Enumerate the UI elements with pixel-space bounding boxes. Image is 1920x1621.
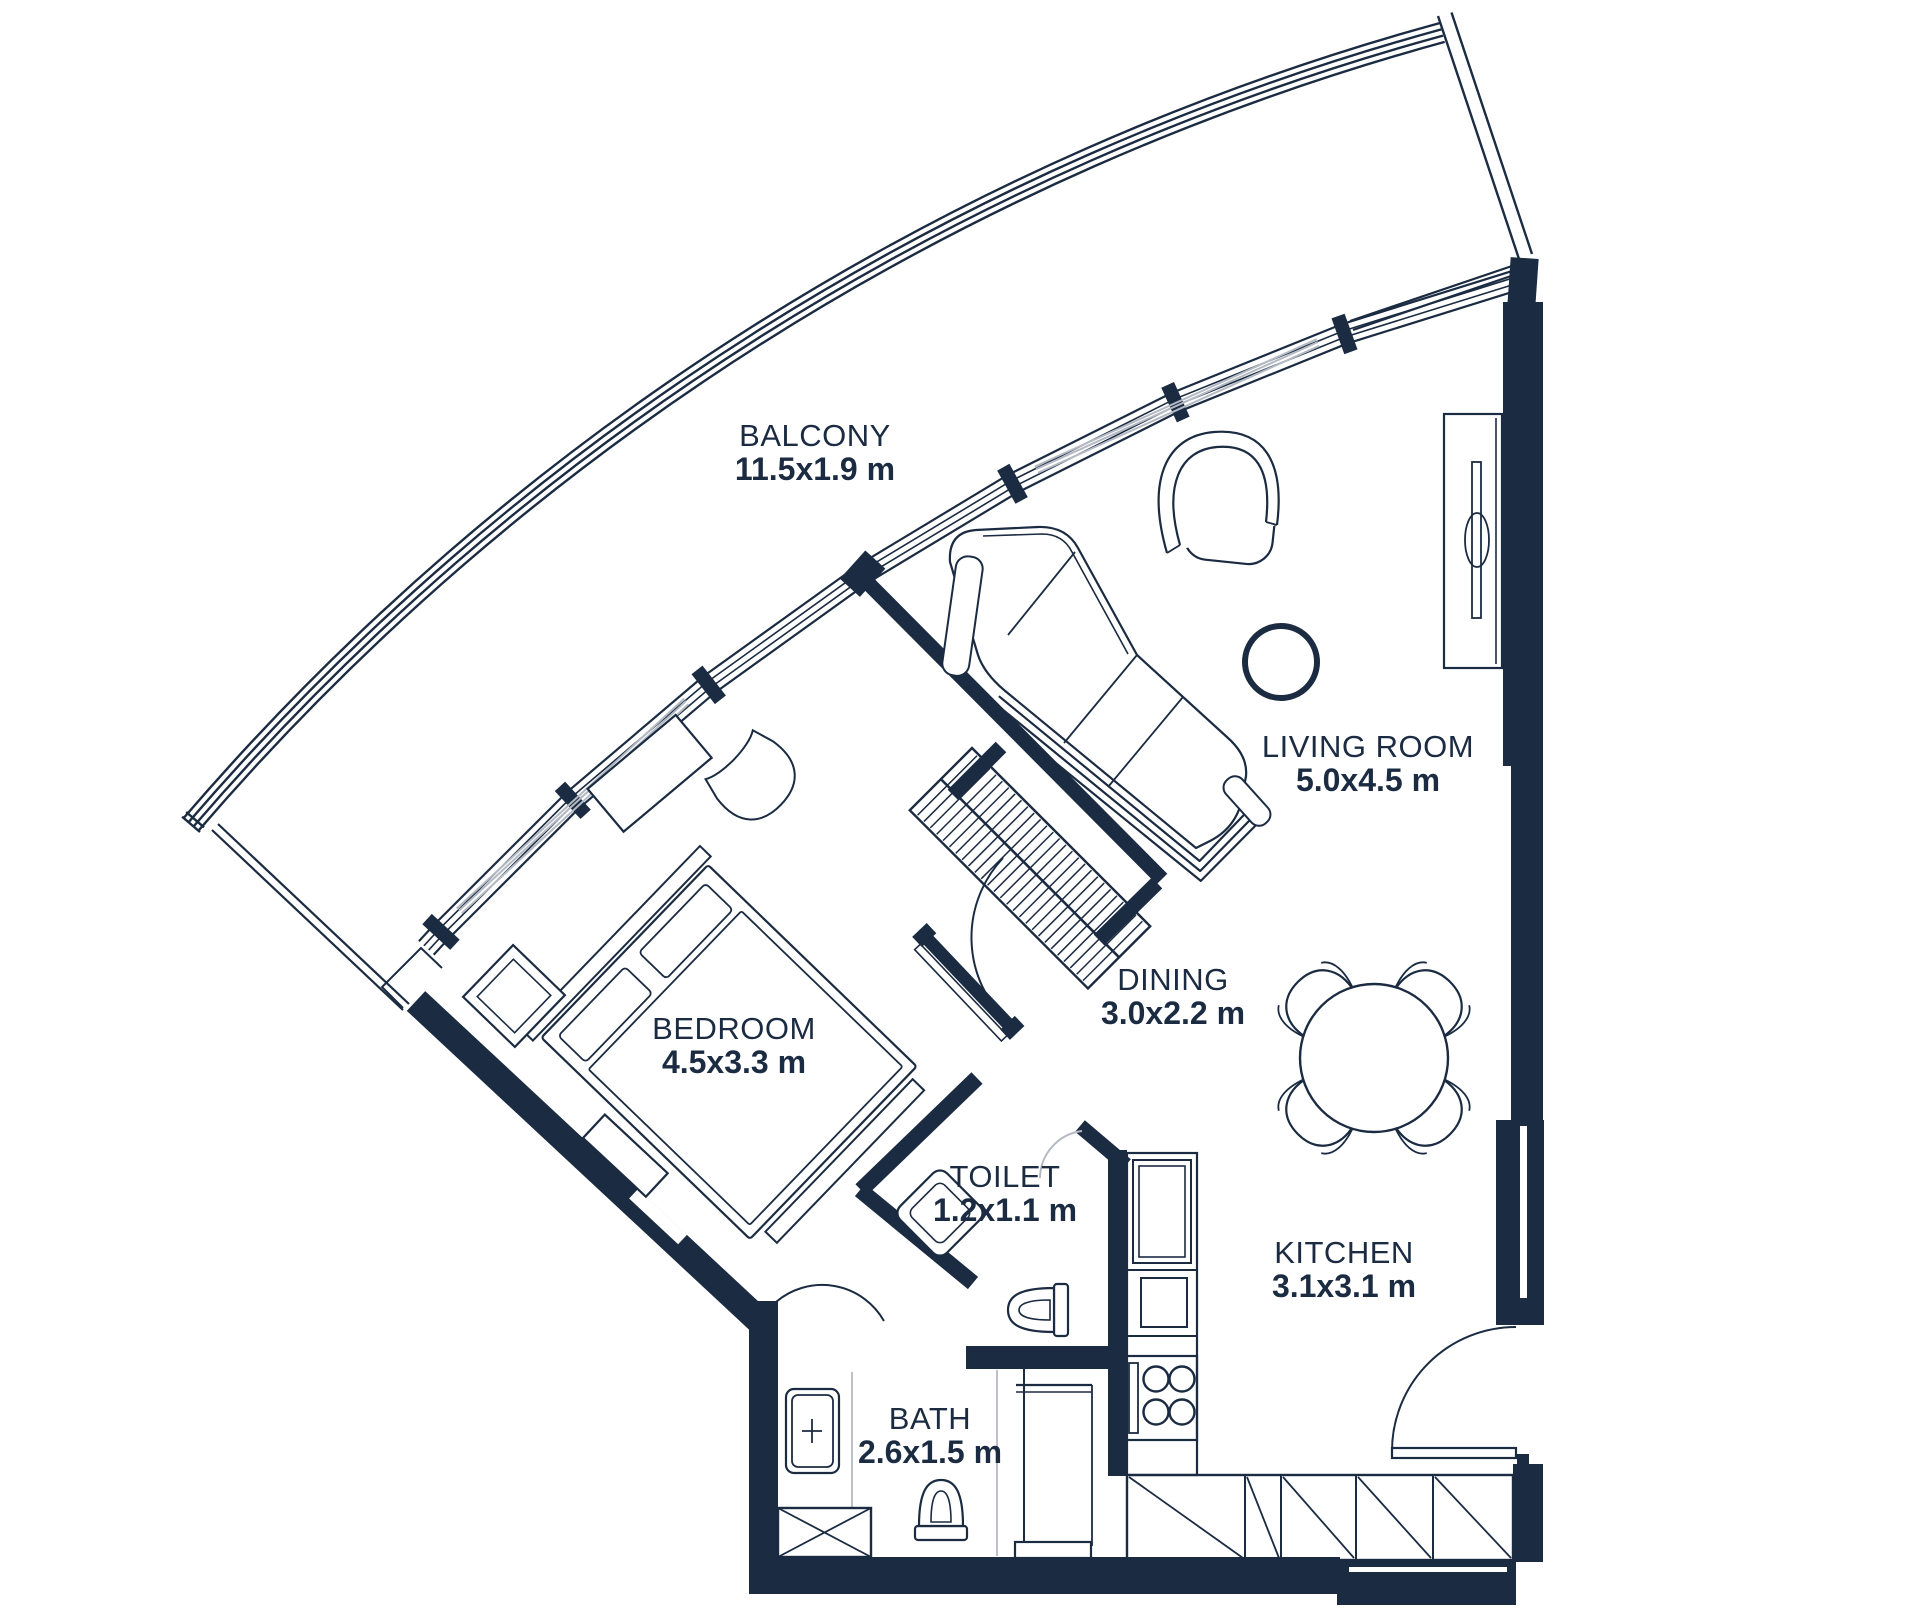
svg-text:1.2x1.1 m: 1.2x1.1 m: [933, 1192, 1077, 1228]
svg-text:KITCHEN: KITCHEN: [1274, 1235, 1414, 1270]
svg-text:TOILET: TOILET: [950, 1159, 1061, 1194]
svg-text:LIVING ROOM: LIVING ROOM: [1262, 729, 1474, 764]
svg-text:3.1x3.1 m: 3.1x3.1 m: [1272, 1268, 1416, 1304]
svg-text:BALCONY: BALCONY: [739, 418, 891, 453]
svg-text:BATH: BATH: [889, 1401, 971, 1436]
svg-text:11.5x1.9 m: 11.5x1.9 m: [735, 451, 895, 487]
svg-text:2.6x1.5 m: 2.6x1.5 m: [858, 1434, 1002, 1470]
svg-text:BEDROOM: BEDROOM: [652, 1011, 816, 1046]
svg-text:DINING: DINING: [1117, 962, 1229, 997]
svg-text:3.0x2.2 m: 3.0x2.2 m: [1101, 995, 1245, 1031]
svg-text:5.0x4.5 m: 5.0x4.5 m: [1296, 762, 1440, 798]
svg-text:4.5x3.3 m: 4.5x3.3 m: [662, 1044, 806, 1080]
